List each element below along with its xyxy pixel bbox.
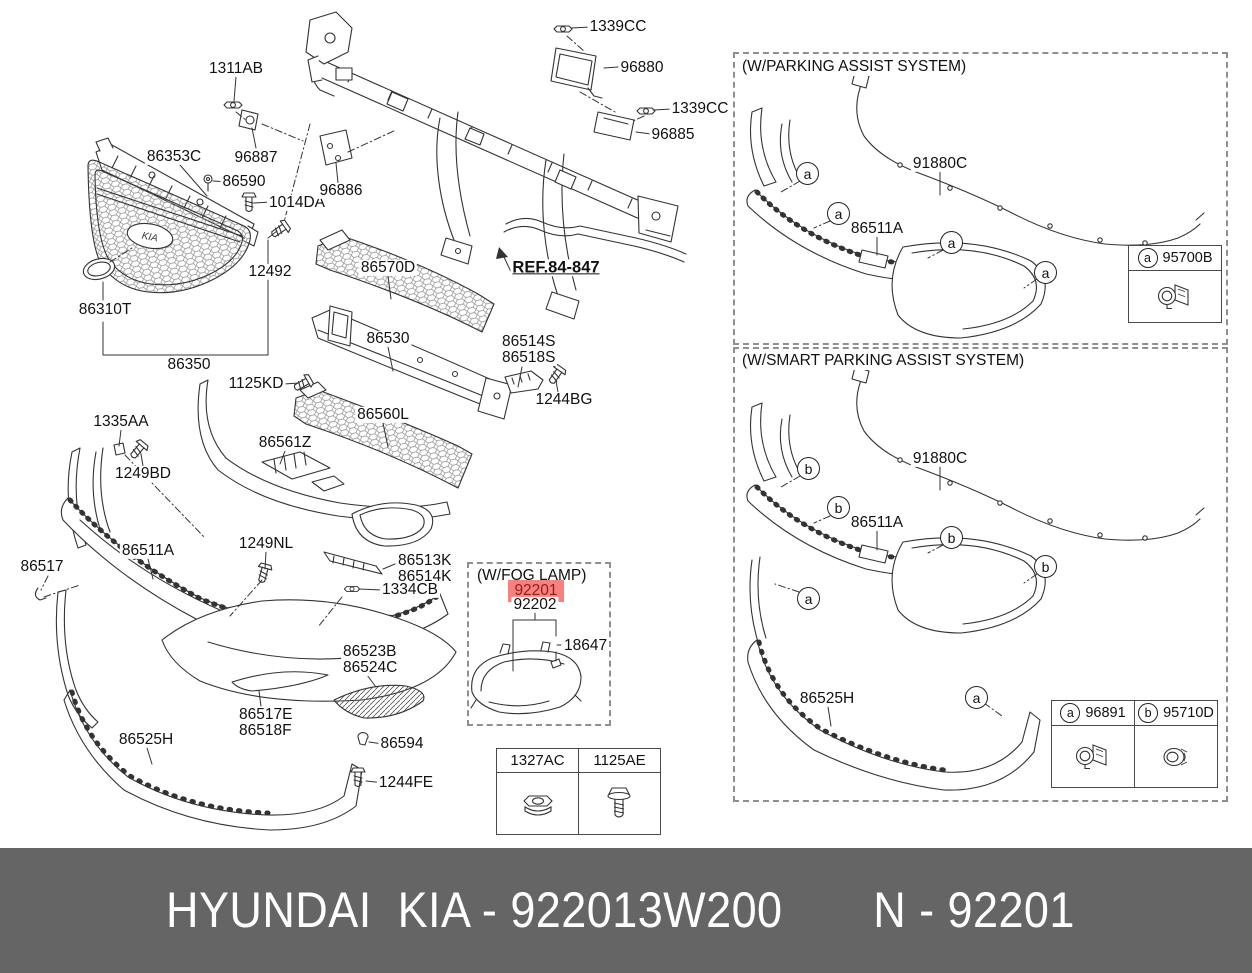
part-label-86513k: 86513K [398, 553, 451, 569]
part-label-86590: 86590 [220, 174, 267, 190]
bracket-96886-drawing [320, 130, 352, 165]
module-96880-drawing [551, 48, 602, 98]
nut-1339cc-icon [637, 108, 655, 114]
part-label-86570d: 86570D [359, 260, 417, 276]
part-label-86524c: 86524C [343, 660, 397, 676]
bolt-1249nl-icon [255, 562, 273, 583]
part-label-86560l: 86560L [355, 407, 411, 423]
absorber-86560l-drawing [294, 382, 472, 488]
bolt-12492-icon [268, 219, 291, 241]
part-label-18647: 18647 [562, 638, 609, 654]
part-label-95710d: 95710D [1163, 705, 1214, 721]
sensor-96891-icon [1052, 726, 1134, 787]
part-number-banner-text: HYUNDAI KIA - 922013W200 N - 92201 [166, 880, 1075, 938]
callout-a-legend: a [1138, 248, 1158, 268]
bracket-96885-drawing [594, 112, 634, 140]
part-label-1244fe: 1244FE [377, 775, 435, 791]
part-label-86561z: 86561Z [257, 435, 314, 451]
part-label-86530: 86530 [364, 331, 411, 347]
part-label-96887: 96887 [232, 150, 279, 166]
part-label-92202: 92202 [511, 597, 558, 613]
part-label-95700b: 95700B [1163, 250, 1213, 266]
parking-legend: a 95700B [1128, 245, 1222, 323]
part-label-96886: 96886 [317, 183, 364, 199]
callout-a-legend-smart: a [1060, 703, 1080, 723]
callout-b-smart-4: b [1034, 555, 1057, 578]
smart-legend-col-a: a 96891 [1052, 701, 1134, 787]
bolt-1249bd-icon [127, 438, 150, 461]
callout-b-smart-2: b [827, 496, 850, 519]
callout-b-legend-smart: b [1138, 703, 1158, 723]
ref-label-84-847: REF.84-847 [510, 259, 601, 276]
nut-1334cb-icon [344, 586, 359, 591]
part-label-86525h-main: 86525H [117, 732, 175, 748]
part-label-96891: 96891 [1085, 705, 1125, 721]
part-label-86511a-main: 86511A [120, 543, 176, 559]
part-label-1249bd: 1249BD [113, 466, 173, 482]
part-label-1249nl: 1249NL [237, 536, 295, 552]
part-label-91880c-smart: 91880C [911, 451, 969, 467]
hardware-header-1327ac: 1327AC [497, 749, 578, 773]
clip-86594-icon [358, 733, 368, 745]
callout-b-smart-1: b [797, 457, 820, 480]
callout-a-parking-2: a [827, 202, 850, 225]
sensor-95700b-icon [1129, 271, 1221, 322]
callout-a-parking-4: a [1034, 261, 1057, 284]
parking-legend-header: a 95700B [1129, 246, 1221, 271]
part-label-86310t: 86310T [77, 302, 134, 318]
part-label-86350: 86350 [165, 357, 212, 373]
smart-legend-header-a: a 96891 [1052, 701, 1134, 726]
part-label-86517e-86518f: 86517E 86518F [237, 707, 294, 739]
part-label-1311ab: 1311AB [207, 61, 265, 77]
bolt-1014da-icon [242, 193, 256, 212]
hardware-col-1327ac: 1327AC [497, 749, 578, 834]
part-label-1335aa: 1335AA [91, 414, 150, 430]
part-label-1125kd: 1125KD [227, 376, 286, 392]
callout-a-smart-2: a [965, 686, 988, 709]
hardware-col-1125ae: 1125AE [578, 749, 660, 834]
part-label-96880: 96880 [618, 60, 665, 76]
parts-diagram-page: KIA [0, 0, 1252, 973]
smart-legend: a 96891 b 95710D [1051, 700, 1218, 788]
nut-1327ac-icon [497, 773, 578, 834]
callout-a-parking-3: a [940, 231, 963, 254]
nut-1339cc-icon [554, 26, 572, 32]
smart-parking-box-title: (W/SMART PARKING ASSIST SYSTEM) [739, 352, 1027, 370]
part-label-1244bg: 1244BG [534, 392, 595, 408]
callout-b-smart-3: b [940, 526, 963, 549]
part-label-86594: 86594 [378, 736, 425, 752]
part-label-96885: 96885 [649, 127, 696, 143]
part-label-86511a-parking: 86511A [849, 221, 905, 237]
smart-legend-header-b: b 95710D [1135, 701, 1217, 726]
part-label-86518f: 86518F [239, 723, 292, 739]
part-label-91880c-parking: 91880C [911, 156, 969, 172]
part-label-12492: 12492 [246, 264, 293, 280]
part-label-86511a-smart: 86511A [849, 515, 905, 531]
part-label-86523b-86524c: 86523B 86524C [341, 644, 399, 676]
parking-legend-col: a 95700B [1129, 246, 1221, 322]
parking-assist-box-title: (W/PARKING ASSIST SYSTEM) [739, 58, 969, 76]
part-label-86514s: 86514S [502, 334, 555, 350]
bracket-86513k-drawing [324, 552, 382, 574]
hardware-table: 1327AC 1125AE [496, 748, 661, 835]
part-label-86523b: 86523B [343, 644, 397, 660]
screw-86590-icon [204, 175, 212, 191]
smart-legend-col-b: b 95710D [1134, 701, 1217, 787]
part-label-86517: 86517 [18, 559, 65, 575]
part-label-86353c: 86353C [145, 149, 203, 165]
part-label-1339cc-2: 1339CC [670, 101, 731, 117]
callout-a-parking-1: a [796, 162, 819, 185]
callout-a-smart-1: a [797, 587, 820, 610]
part-label-1334cb: 1334CB [380, 582, 440, 598]
bolt-1125ae-icon [579, 773, 660, 834]
bracket-86514s-drawing [505, 371, 543, 393]
part-label-86518s: 86518S [502, 350, 555, 366]
nut-1311ab-icon [224, 102, 242, 108]
part-label-86517e: 86517E [239, 707, 292, 723]
sensor-95710d-icon [1135, 726, 1217, 787]
hardware-header-1125ae: 1125AE [579, 749, 660, 773]
part-number-banner: HYUNDAI KIA - 922013W200 N - 92201 [0, 848, 1252, 973]
part-label-86525h-smart: 86525H [798, 691, 856, 707]
part-label-1339cc-1: 1339CC [588, 19, 649, 35]
part-label-86514s-86518s: 86514S 86518S [500, 334, 557, 366]
sensor-96887-drawing [239, 110, 258, 130]
